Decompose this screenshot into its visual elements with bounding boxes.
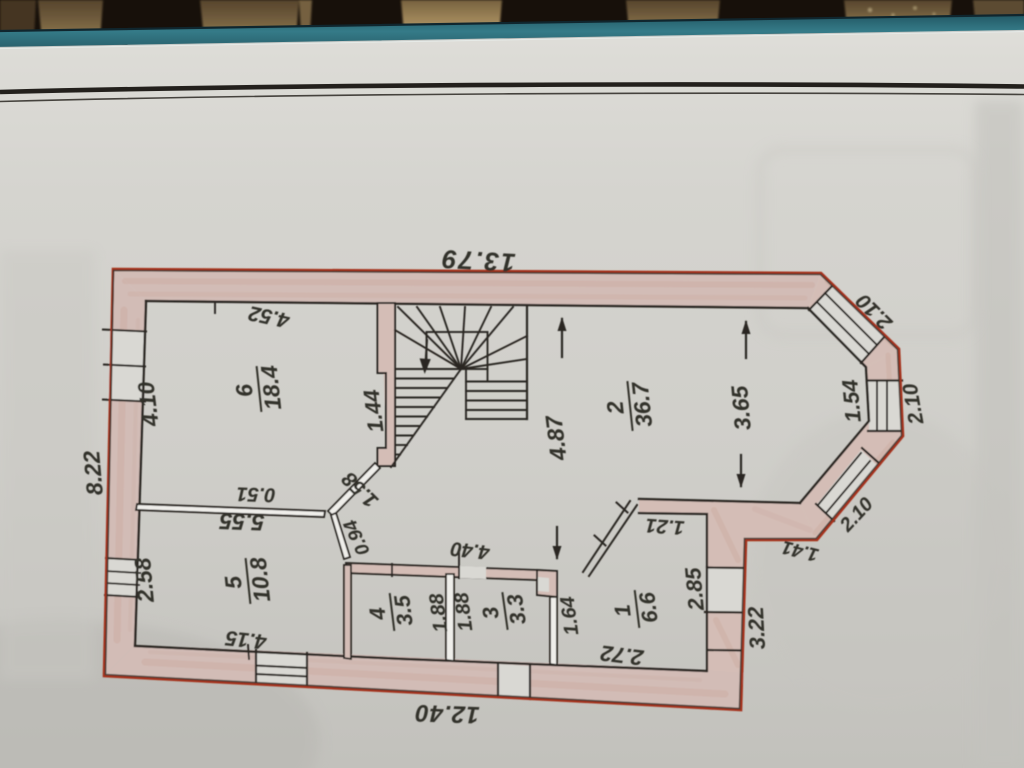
svg-text:1.44: 1.44 bbox=[358, 388, 388, 434]
svg-text:2.85: 2.85 bbox=[680, 566, 709, 613]
svg-text:12.40: 12.40 bbox=[414, 699, 480, 728]
svg-text:10.8: 10.8 bbox=[245, 556, 276, 603]
svg-text:1.64: 1.64 bbox=[557, 595, 584, 636]
svg-text:4.40: 4.40 bbox=[450, 537, 492, 563]
svg-text:18.4: 18.4 bbox=[256, 364, 287, 411]
svg-text:3.65: 3.65 bbox=[726, 383, 756, 431]
svg-text:8.22: 8.22 bbox=[78, 449, 108, 496]
svg-text:5.55: 5.55 bbox=[218, 508, 265, 536]
svg-text:13.79: 13.79 bbox=[440, 244, 517, 278]
svg-text:6.6: 6.6 bbox=[634, 590, 663, 624]
svg-text:0.51: 0.51 bbox=[236, 482, 276, 505]
svg-text:36.7: 36.7 bbox=[627, 380, 658, 428]
svg-text:2.58: 2.58 bbox=[129, 556, 159, 604]
svg-text:3.22: 3.22 bbox=[743, 605, 770, 650]
svg-text:3.5: 3.5 bbox=[389, 593, 418, 627]
svg-text:2: 2 bbox=[601, 400, 628, 417]
svg-text:4.10: 4.10 bbox=[132, 380, 163, 429]
svg-text:1.21: 1.21 bbox=[645, 514, 685, 539]
svg-text:4.15: 4.15 bbox=[224, 626, 268, 653]
svg-text:1.54: 1.54 bbox=[837, 379, 866, 424]
svg-text:3.3: 3.3 bbox=[502, 593, 531, 627]
